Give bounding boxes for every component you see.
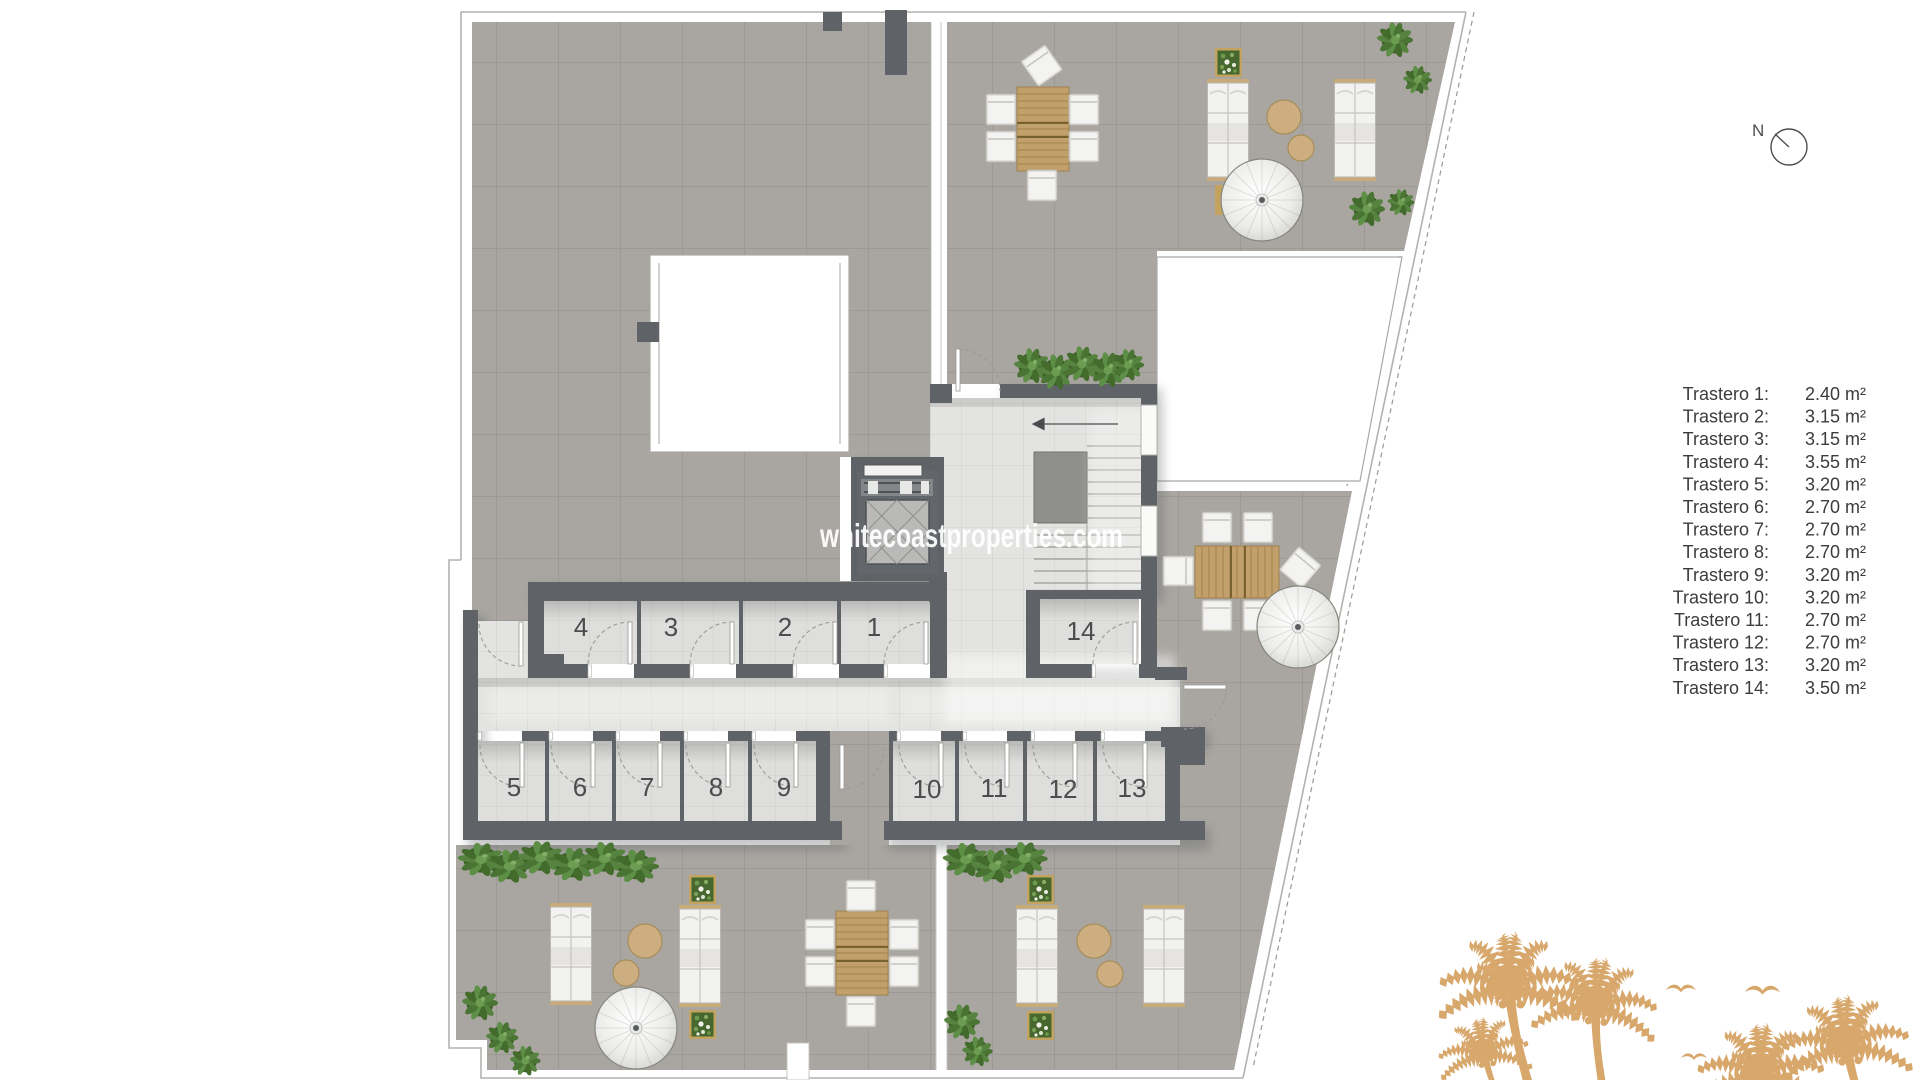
svg-text:4: 4 — [574, 612, 588, 642]
svg-text:14: 14 — [1067, 616, 1096, 646]
svg-text:2.70 m²: 2.70 m² — [1805, 542, 1866, 562]
svg-text:Trastero 4:: Trastero 4: — [1683, 452, 1769, 472]
svg-text:Trastero 7:: Trastero 7: — [1683, 520, 1769, 540]
svg-text:7: 7 — [640, 772, 654, 802]
svg-text:13: 13 — [1118, 773, 1147, 803]
svg-text:Trastero 8:: Trastero 8: — [1683, 542, 1769, 562]
svg-text:whitecoastproperties.com: whitecoastproperties.com — [819, 517, 1123, 554]
svg-text:Trastero 10:: Trastero 10: — [1673, 587, 1769, 607]
svg-text:3.15 m²: 3.15 m² — [1805, 407, 1866, 427]
svg-text:2.70 m²: 2.70 m² — [1805, 633, 1866, 653]
svg-text:Trastero 13:: Trastero 13: — [1673, 655, 1769, 675]
svg-text:Trastero 12:: Trastero 12: — [1673, 633, 1769, 653]
svg-text:3.50 m²: 3.50 m² — [1805, 678, 1866, 698]
svg-text:Trastero 3:: Trastero 3: — [1683, 429, 1769, 449]
svg-text:Trastero 6:: Trastero 6: — [1683, 497, 1769, 517]
svg-text:Trastero 1:: Trastero 1: — [1683, 384, 1769, 404]
svg-text:3: 3 — [664, 612, 678, 642]
svg-text:3.15 m²: 3.15 m² — [1805, 429, 1866, 449]
svg-text:2.40 m²: 2.40 m² — [1805, 384, 1866, 404]
svg-text:3.20 m²: 3.20 m² — [1805, 587, 1866, 607]
svg-text:Trastero 11:: Trastero 11: — [1674, 610, 1769, 630]
svg-text:Trastero 14:: Trastero 14: — [1673, 678, 1769, 698]
svg-text:2.70 m²: 2.70 m² — [1805, 497, 1866, 517]
svg-text:6: 6 — [573, 772, 587, 802]
svg-text:11: 11 — [981, 773, 1008, 803]
svg-text:2.70 m²: 2.70 m² — [1805, 610, 1866, 630]
svg-text:8: 8 — [709, 772, 723, 802]
svg-text:N: N — [1752, 121, 1764, 140]
svg-text:1: 1 — [867, 612, 881, 642]
svg-text:Trastero 2:: Trastero 2: — [1683, 407, 1769, 427]
svg-text:10: 10 — [913, 774, 942, 804]
svg-text:3.20 m²: 3.20 m² — [1805, 474, 1866, 494]
svg-text:2: 2 — [778, 612, 792, 642]
svg-text:3.20 m²: 3.20 m² — [1805, 565, 1866, 585]
svg-text:Trastero 9:: Trastero 9: — [1683, 565, 1769, 585]
svg-text:2.70 m²: 2.70 m² — [1805, 520, 1866, 540]
svg-text:5: 5 — [507, 772, 521, 802]
svg-text:12: 12 — [1049, 774, 1078, 804]
svg-text:9: 9 — [777, 772, 791, 802]
svg-text:Trastero 5:: Trastero 5: — [1683, 474, 1769, 494]
svg-text:3.55 m²: 3.55 m² — [1805, 452, 1866, 472]
svg-text:3.20 m²: 3.20 m² — [1805, 655, 1866, 675]
